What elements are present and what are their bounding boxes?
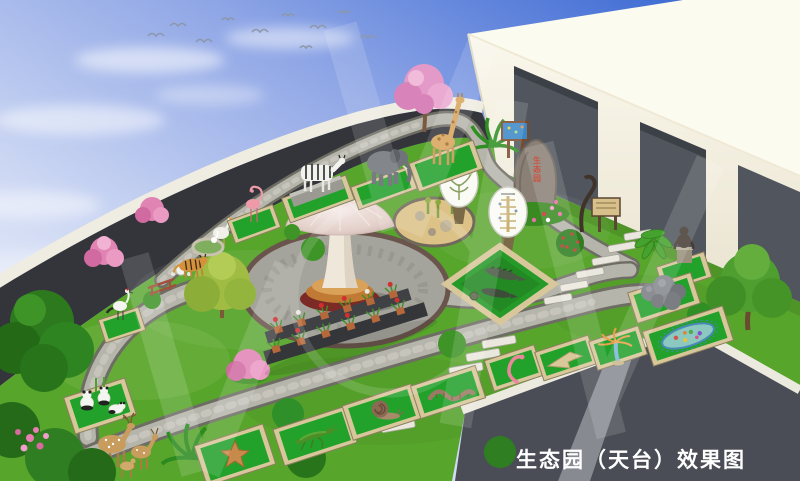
rendering-image: 生态园 [0,0,800,481]
caption: 生态园（天台）效果图 [516,448,746,472]
boxwood-ball [284,224,300,240]
rooftop-garden-scene: 生态园 [0,0,800,481]
